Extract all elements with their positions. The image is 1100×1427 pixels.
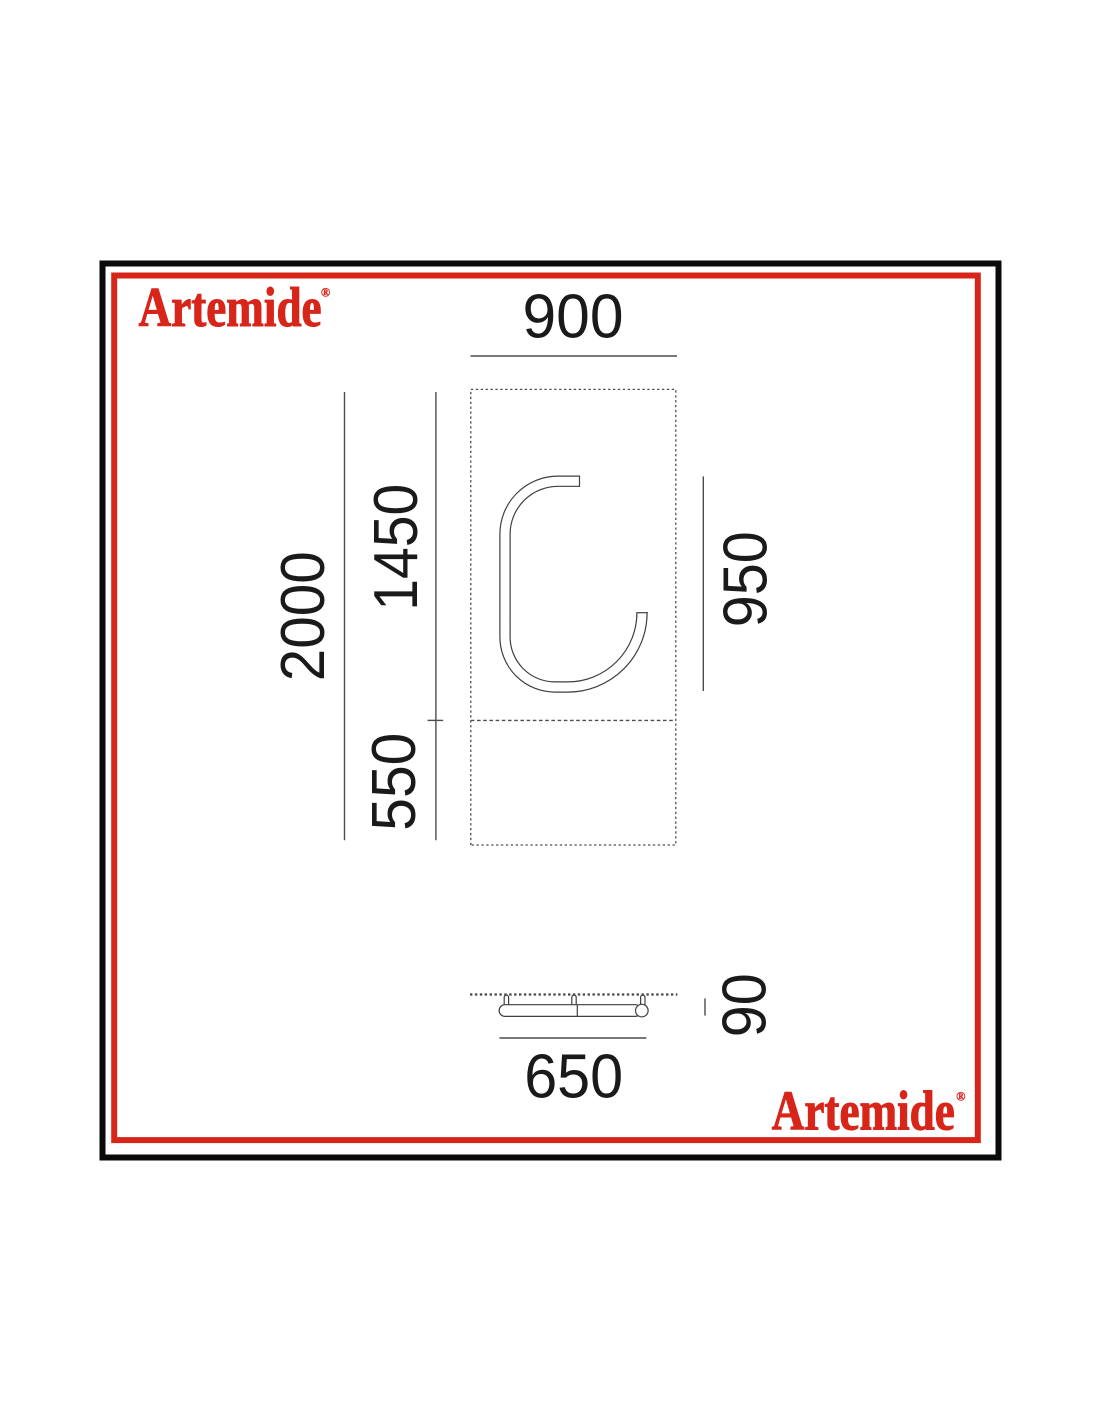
svg-text:Artemide: Artemide: [772, 1080, 955, 1142]
svg-text:650: 650: [524, 1043, 623, 1112]
svg-text:®: ®: [321, 286, 330, 300]
svg-text:2000: 2000: [269, 551, 338, 681]
svg-text:®: ®: [956, 1090, 965, 1104]
svg-text:900: 900: [523, 282, 624, 351]
svg-text:550: 550: [360, 733, 429, 831]
svg-text:950: 950: [711, 531, 780, 627]
svg-text:Artemide: Artemide: [139, 277, 322, 339]
svg-text:1450: 1450: [362, 484, 431, 611]
svg-text:90: 90: [710, 973, 779, 1037]
